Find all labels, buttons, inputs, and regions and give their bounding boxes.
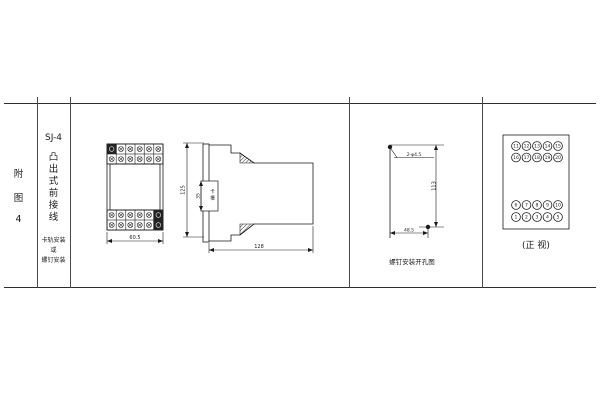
marked-terminal [107, 144, 116, 154]
marked-terminal [154, 220, 163, 230]
svg-text:113: 113 [432, 181, 438, 191]
terminal-numbering-drawing: 11 12 13 14 15 16 17 18 19 20 6 7 8 9 10… [482, 103, 600, 287]
svg-text:128: 128 [254, 244, 264, 250]
mounting-note-line: 螺钉安装 [41, 256, 65, 266]
title-char: 接 [49, 201, 59, 211]
title-char: 凸 [49, 153, 59, 163]
svg-text:6: 6 [515, 203, 518, 209]
svg-text:48.5: 48.5 [404, 228, 414, 234]
svg-text:1: 1 [515, 215, 518, 221]
mounting-note-line: 卡轨安装 [41, 236, 65, 246]
terminal-circles [512, 142, 563, 222]
svg-text:10: 10 [555, 203, 561, 209]
table-bottom-border [4, 287, 596, 288]
model-label: SJ-4 [45, 133, 62, 143]
mounting-hole-bottom [426, 225, 430, 229]
svg-text:8: 8 [536, 203, 539, 209]
svg-text:125: 125 [181, 185, 187, 195]
svg-text:2-φ4.5: 2-φ4.5 [407, 152, 422, 158]
svg-text:11: 11 [513, 144, 519, 150]
relay-body [110, 164, 160, 210]
drill-hole-drawing: 2-φ4.5 113 48.5 螺钉安装开孔图 [349, 103, 480, 287]
front-width-dimension: 60.5 [107, 232, 163, 244]
svg-text:14: 14 [545, 144, 551, 150]
drawing-sheet: 附 图 4 SJ-4 凸 出 式 前 接 线 卡轨安装 或 螺钉安装 [0, 0, 600, 400]
title-char: 出 [49, 165, 59, 175]
gusset-hatch-top [240, 153, 254, 163]
rail-slot: 35 卡 槽 [196, 181, 219, 211]
index-char: 图 [14, 190, 24, 204]
front-view-drawing: 60.5 [107, 144, 163, 244]
svg-text:13: 13 [534, 144, 540, 150]
svg-text:15: 15 [555, 144, 561, 150]
mounting-note: 卡轨安装 或 螺钉安装 [41, 236, 65, 266]
gusset-hatch-bottom [240, 224, 254, 235]
side-view-drawing: 125 35 卡 槽 128 [181, 143, 314, 253]
svg-text:4: 4 [546, 215, 549, 221]
svg-text:5: 5 [557, 215, 560, 221]
side-height-dimension: 125 [181, 143, 205, 237]
svg-text:9: 9 [546, 203, 549, 209]
svg-text:35: 35 [196, 193, 202, 199]
svg-text:槽: 槽 [210, 195, 215, 202]
mounting-note-line: 或 [41, 246, 65, 256]
svg-text:16: 16 [513, 155, 519, 161]
figure-index-label: 附 图 4 [0, 103, 37, 287]
title-char: 前 [49, 189, 59, 199]
outline-drawings: 60.5 125 35 卡 槽 [70, 103, 349, 287]
relay-side-profile [209, 145, 313, 241]
svg-text:2: 2 [525, 215, 528, 221]
hole-diameter-label: 2-φ4.5 [391, 149, 434, 158]
drill-view-caption: 螺钉安装开孔图 [389, 257, 435, 266]
title-vertical-label: 凸 出 式 前 接 线 [49, 153, 59, 223]
index-char: 附 [14, 166, 24, 180]
svg-text:17: 17 [524, 155, 530, 161]
title-column: SJ-4 凸 出 式 前 接 线 卡轨安装 或 螺钉安装 [37, 103, 70, 287]
side-depth-dimension: 128 [209, 226, 313, 253]
svg-text:卡: 卡 [210, 188, 215, 195]
drill-width-dimension: 48.5 [390, 228, 428, 239]
index-char: 4 [15, 214, 21, 225]
svg-text:20: 20 [555, 155, 561, 161]
svg-text:3: 3 [536, 215, 539, 221]
svg-text:18: 18 [534, 155, 540, 161]
title-char: 线 [49, 213, 59, 223]
marked-terminal [154, 210, 163, 220]
title-char: 式 [49, 177, 59, 187]
svg-text:60.5: 60.5 [129, 235, 140, 241]
svg-text:7: 7 [525, 203, 528, 209]
mounting-hole-top [388, 145, 392, 149]
svg-text:12: 12 [524, 144, 530, 150]
terminal-view-caption: (正 视) [522, 239, 550, 251]
svg-text:19: 19 [545, 155, 551, 161]
